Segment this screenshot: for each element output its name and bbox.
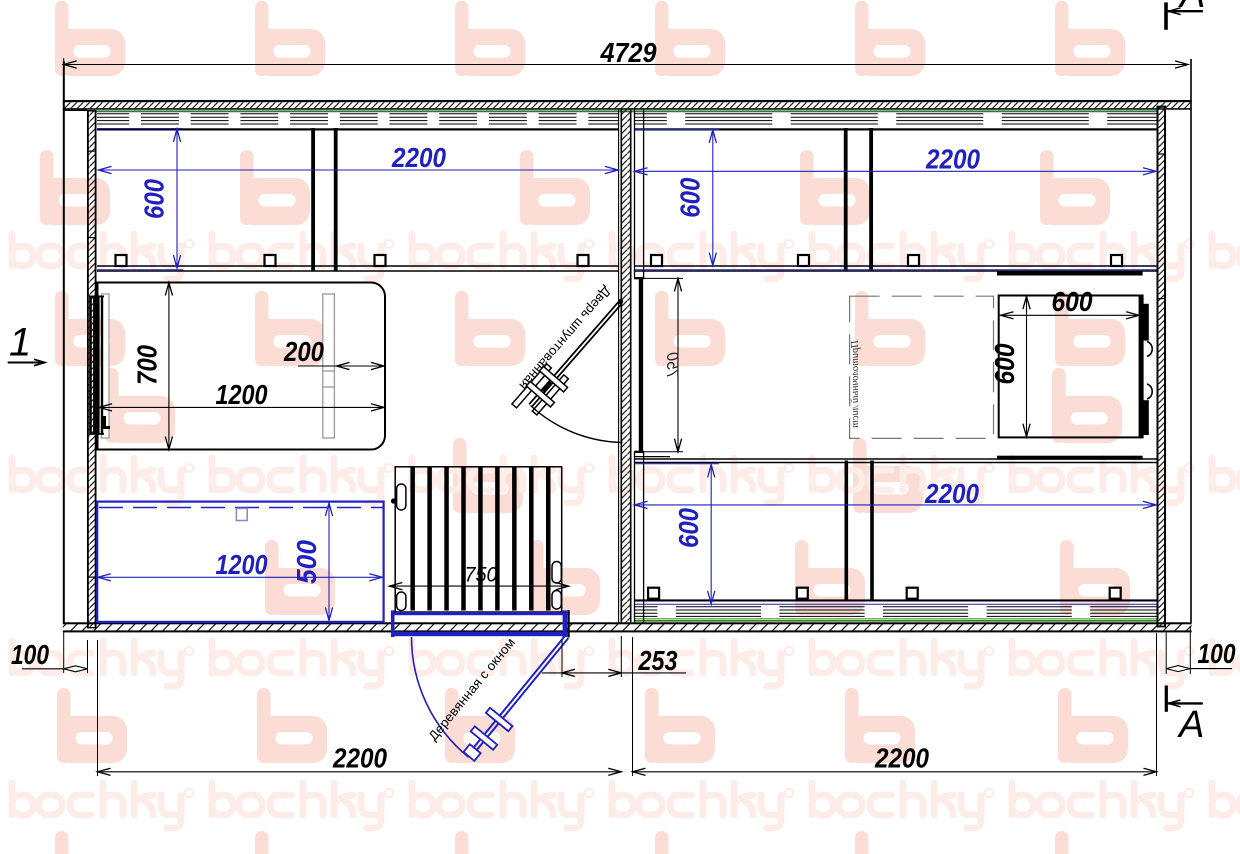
svg-text:750: 750: [663, 352, 681, 379]
svg-text:700: 700: [132, 345, 163, 385]
svg-text:600: 600: [673, 508, 704, 548]
svg-text:253: 253: [638, 645, 678, 676]
svg-text:600: 600: [989, 343, 1020, 384]
svg-text:4729: 4729: [600, 37, 657, 68]
svg-text:600: 600: [1052, 286, 1093, 317]
svg-text:750: 750: [465, 564, 498, 587]
svg-text:100: 100: [1198, 638, 1236, 669]
svg-text:200: 200: [283, 336, 324, 367]
svg-text:2200: 2200: [391, 142, 446, 173]
svg-text:Притолочный лист: Притолочный лист: [850, 339, 861, 428]
svg-text:600: 600: [139, 179, 170, 219]
svg-text:500: 500: [291, 540, 322, 584]
svg-text:2200: 2200: [332, 742, 387, 773]
svg-text:1: 1: [9, 321, 31, 365]
svg-text:2200: 2200: [925, 144, 980, 175]
svg-text:100: 100: [11, 639, 49, 670]
svg-text:1200: 1200: [216, 379, 268, 410]
svg-text:A: A: [1178, 0, 1205, 16]
svg-text:1200: 1200: [216, 549, 268, 580]
svg-text:2200: 2200: [874, 742, 929, 773]
svg-text:600: 600: [675, 177, 706, 217]
svg-text:A: A: [1177, 704, 1204, 746]
svg-text:2200: 2200: [924, 478, 979, 509]
